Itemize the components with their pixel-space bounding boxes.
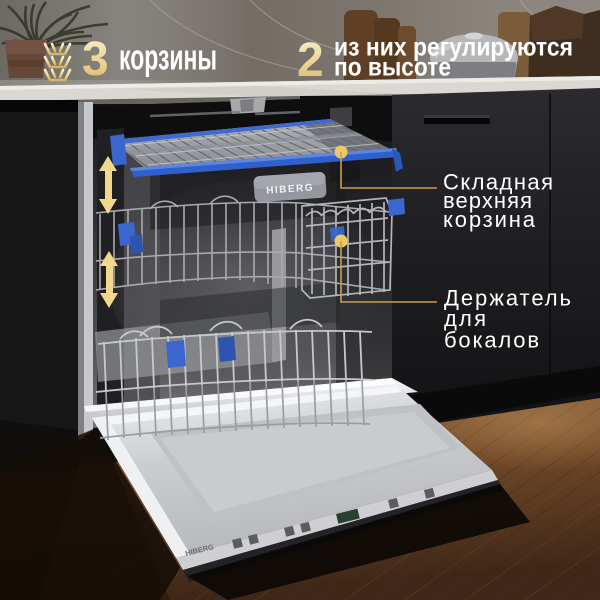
svg-text:бокалов: бокалов [444, 328, 539, 353]
svg-text:корзина: корзина [443, 207, 536, 232]
svg-text:3: 3 [82, 33, 109, 86]
svg-text:корзины: корзины [119, 37, 217, 78]
svg-text:по высоте: по высоте [334, 52, 451, 82]
svg-text:2: 2 [297, 34, 324, 87]
